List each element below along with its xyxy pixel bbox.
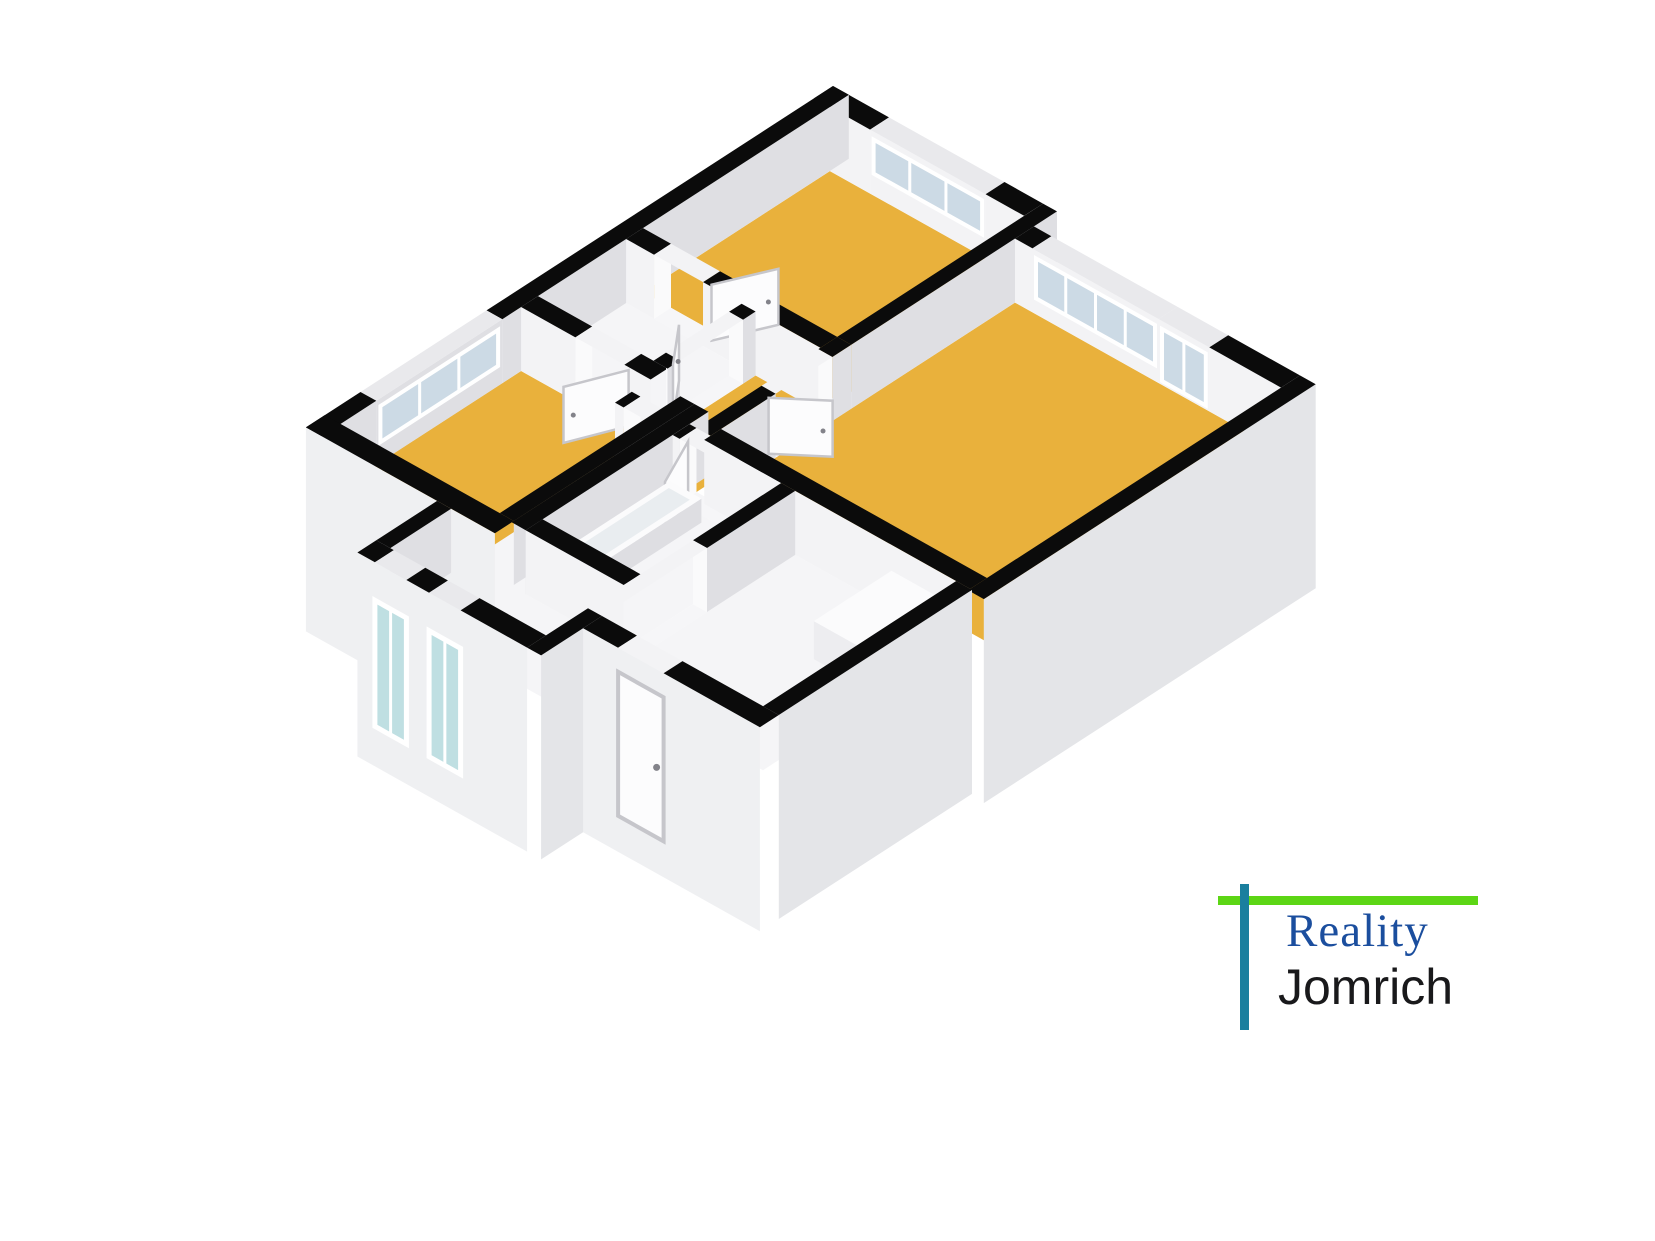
door-leaf-living-room-handle [821,429,826,434]
door-leaf-bedroom-1-handle [766,300,771,305]
entry-door [618,672,664,842]
door-leaf-vestibule-handle [676,359,681,364]
wall-vestibule-hall-face [743,312,756,384]
wall-hall-living-face [832,345,851,421]
floorplan-render [0,0,1655,1241]
floorplan-page: Reality Jomrich [0,0,1655,1241]
door-leaf-living-room [769,398,833,457]
entry-door-handle [653,764,660,771]
door-leaf-bedroom-2-handle [571,413,576,418]
wall-living-ne-face [1015,239,1033,313]
